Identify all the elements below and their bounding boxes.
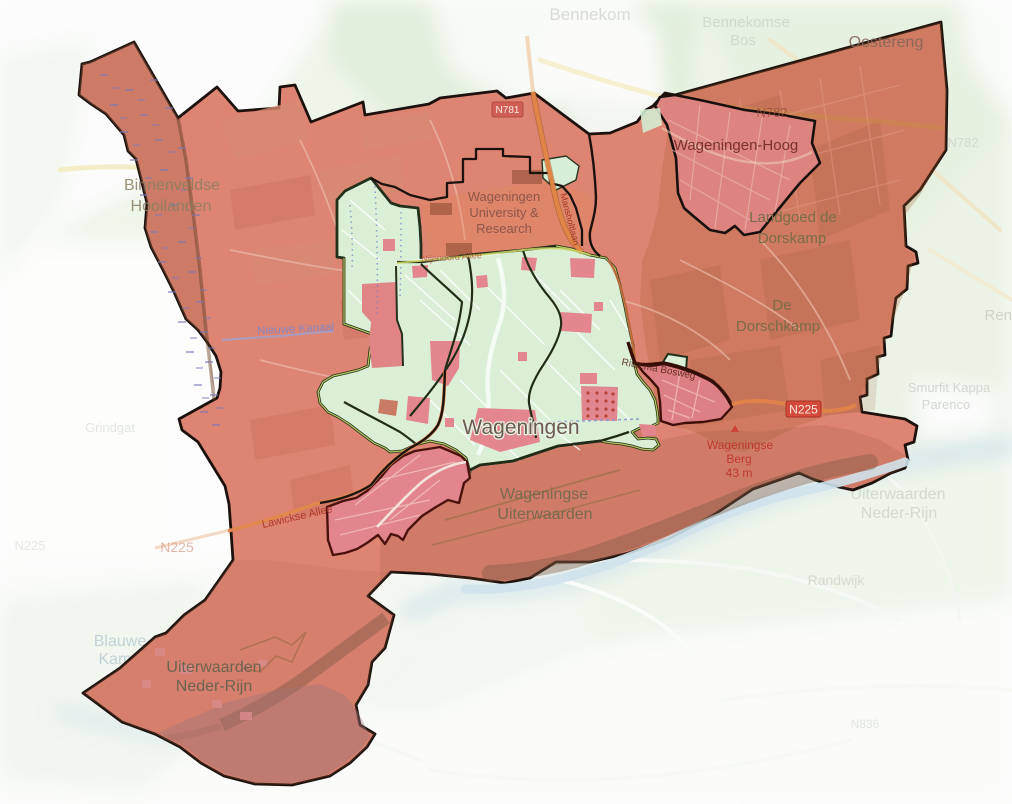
- svg-text:Landgoed de: Landgoed de: [749, 209, 837, 226]
- svg-text:Parenco: Parenco: [922, 397, 970, 412]
- svg-text:Bennekom: Bennekom: [549, 5, 630, 24]
- svg-text:Randwijk: Randwijk: [808, 572, 866, 588]
- svg-text:N782: N782: [947, 135, 978, 150]
- svg-text:De: De: [772, 297, 791, 314]
- svg-text:Uiterwaarden: Uiterwaarden: [497, 506, 592, 523]
- svg-text:Bennekomse: Bennekomse: [702, 14, 790, 31]
- svg-text:Wageningse: Wageningse: [707, 438, 774, 452]
- svg-text:Renk: Renk: [984, 307, 1012, 324]
- svg-text:Blauwe: Blauwe: [94, 633, 147, 650]
- svg-text:N225: N225: [14, 538, 45, 553]
- svg-text:Dorschkamp: Dorschkamp: [736, 318, 820, 335]
- svg-text:N782: N782: [756, 105, 787, 120]
- svg-text:Smurfit Kappa: Smurfit Kappa: [908, 380, 991, 395]
- svg-text:N836: N836: [851, 717, 880, 731]
- svg-text:University &: University &: [469, 205, 539, 220]
- svg-text:Wageningen: Wageningen: [468, 189, 541, 204]
- svg-text:Uiterwaarden: Uiterwaarden: [850, 486, 945, 503]
- svg-text:Wageningen: Wageningen: [462, 416, 579, 439]
- svg-text:Binnenveldse: Binnenveldse: [124, 177, 220, 194]
- svg-text:N781: N781: [496, 105, 520, 116]
- svg-text:Wageningen-Hoog: Wageningen-Hoog: [674, 137, 799, 154]
- svg-text:Hooilanden: Hooilanden: [131, 198, 212, 215]
- svg-text:N225: N225: [160, 539, 194, 555]
- svg-text:Grindgat: Grindgat: [85, 420, 135, 435]
- svg-text:N225: N225: [789, 403, 818, 417]
- svg-text:43 m: 43 m: [726, 466, 753, 480]
- svg-text:Neder-Rijn: Neder-Rijn: [861, 505, 937, 522]
- svg-text:Neder-Rijn: Neder-Rijn: [176, 678, 252, 695]
- svg-text:Wageningse: Wageningse: [500, 486, 588, 503]
- svg-text:Dorskamp: Dorskamp: [758, 230, 826, 247]
- svg-text:Uiterwaarden: Uiterwaarden: [166, 659, 261, 676]
- svg-text:Bos: Bos: [730, 32, 756, 49]
- svg-text:Research: Research: [476, 221, 532, 236]
- svg-text:Berg: Berg: [726, 452, 751, 466]
- svg-text:Oostereng: Oostereng: [849, 34, 924, 51]
